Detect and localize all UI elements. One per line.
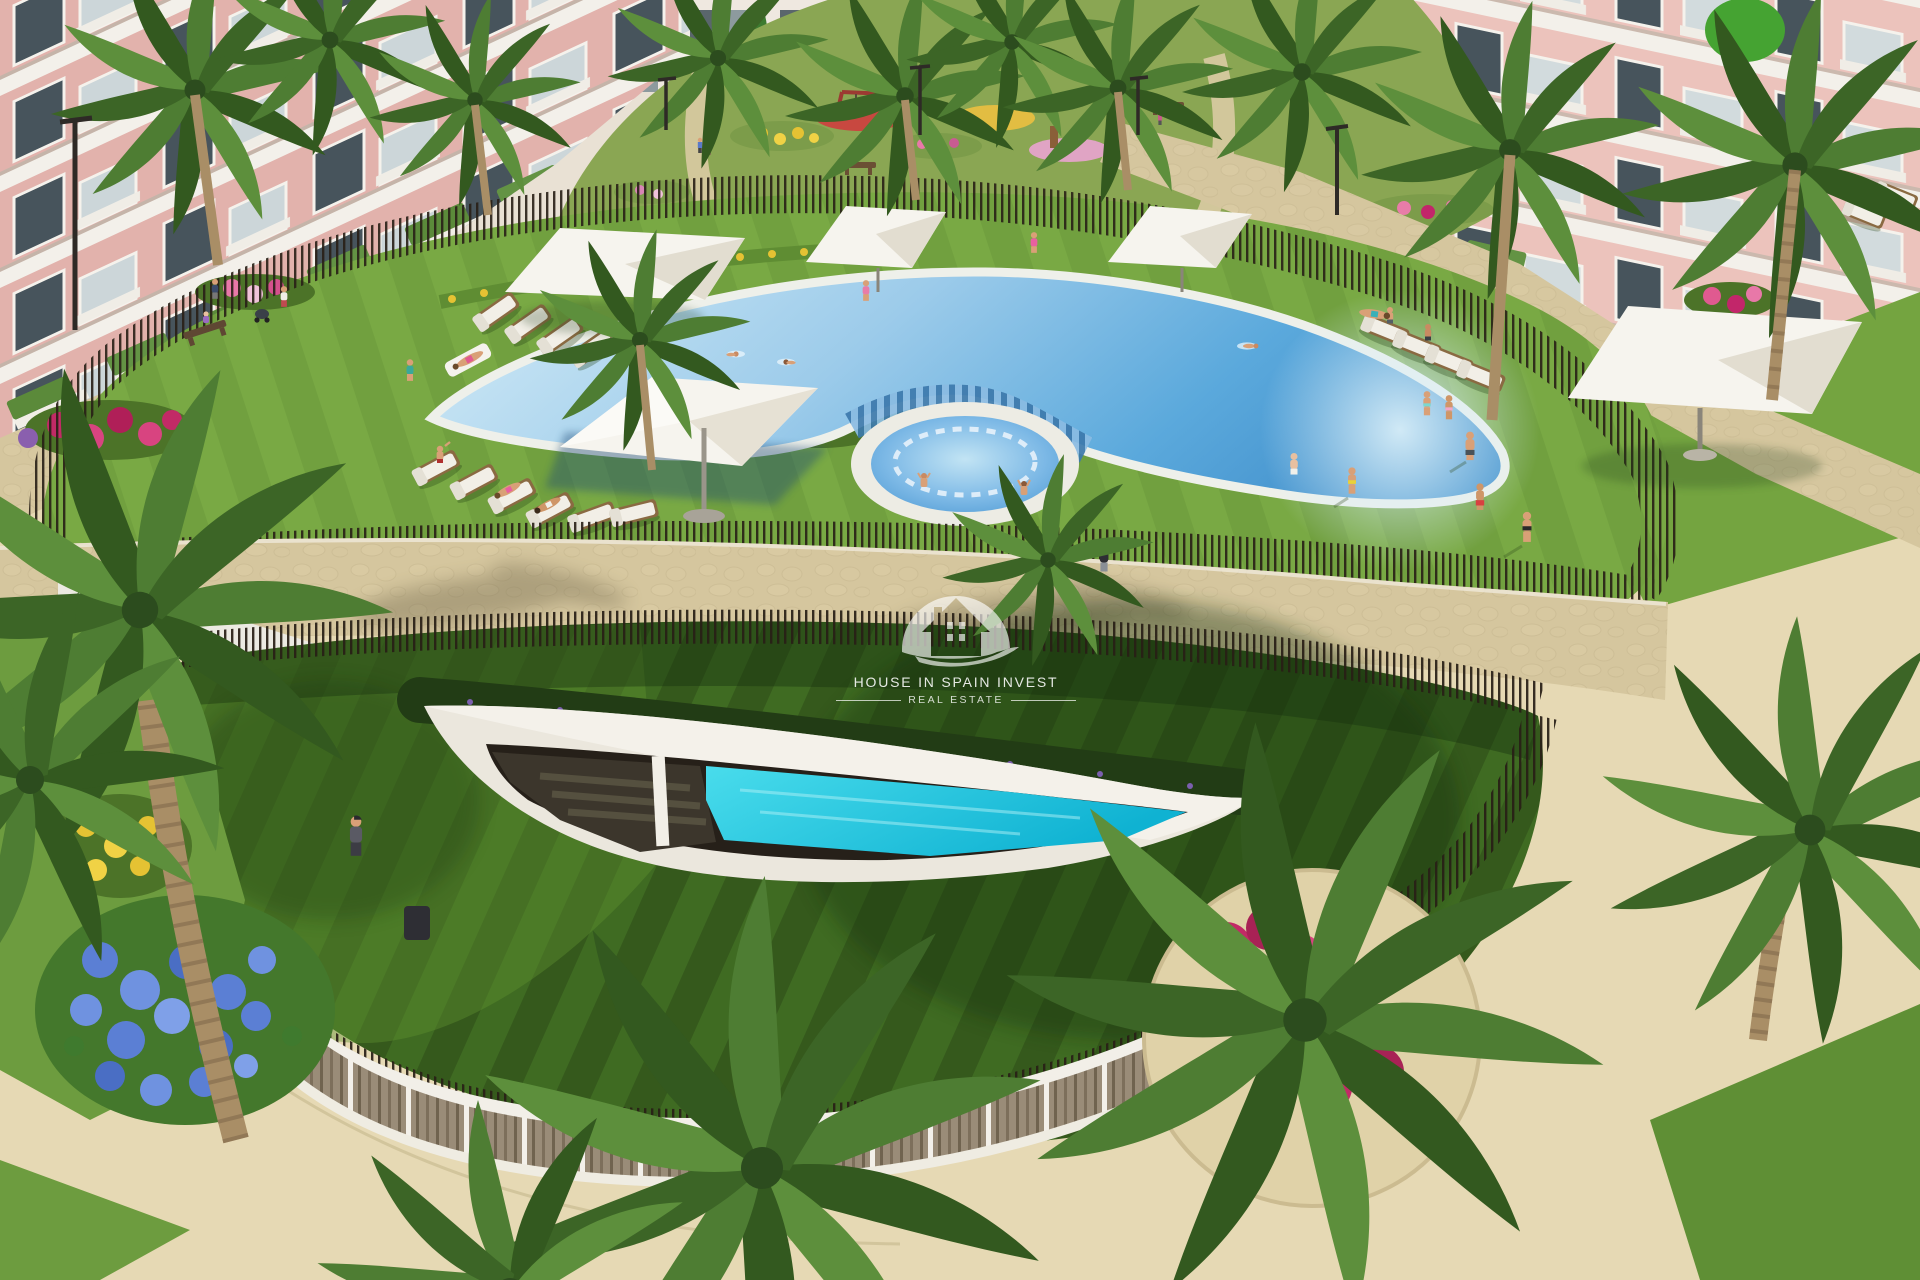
travel-bag (404, 906, 430, 940)
person (698, 138, 702, 153)
person (281, 286, 288, 307)
person (1445, 395, 1452, 419)
person (1425, 324, 1431, 341)
person (350, 815, 362, 855)
person (1348, 467, 1356, 493)
person (407, 359, 414, 381)
person (203, 311, 209, 323)
person (863, 280, 870, 301)
person (1466, 432, 1475, 461)
person (1523, 512, 1532, 542)
person (1423, 391, 1430, 415)
parasol (1568, 306, 1862, 488)
person (1476, 483, 1484, 510)
scene-art (0, 0, 1920, 1280)
person (1290, 453, 1298, 475)
resort-render: HOUSE IN SPAIN INVEST REAL ESTATE (0, 0, 1920, 1280)
person (1031, 232, 1038, 253)
person (212, 279, 218, 299)
